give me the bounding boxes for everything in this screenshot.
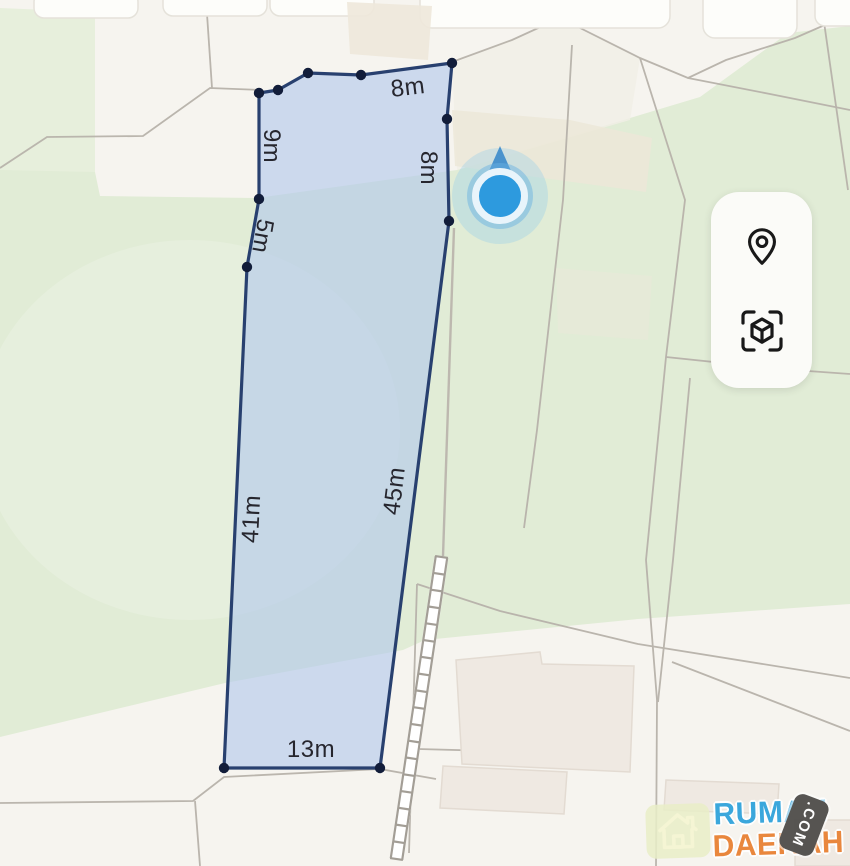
map-basemap: [0, 0, 850, 866]
watermark: RUMAH DAERAH .COM: [638, 793, 850, 866]
green-area-left-strip: [0, 8, 95, 172]
house-icon: [645, 803, 711, 859]
map-view[interactable]: 8m8m9m5m41m45m13m: [0, 0, 850, 866]
watermark-brand-bottom: DAERAH: [712, 827, 844, 862]
map-tools-panel: [711, 192, 812, 388]
map-pin-icon: [739, 224, 785, 273]
my-location-button[interactable]: [736, 222, 788, 274]
ar-cube-icon: [738, 307, 786, 358]
building-blocks-top: [34, 0, 850, 38]
view-3d-button[interactable]: [736, 306, 788, 358]
